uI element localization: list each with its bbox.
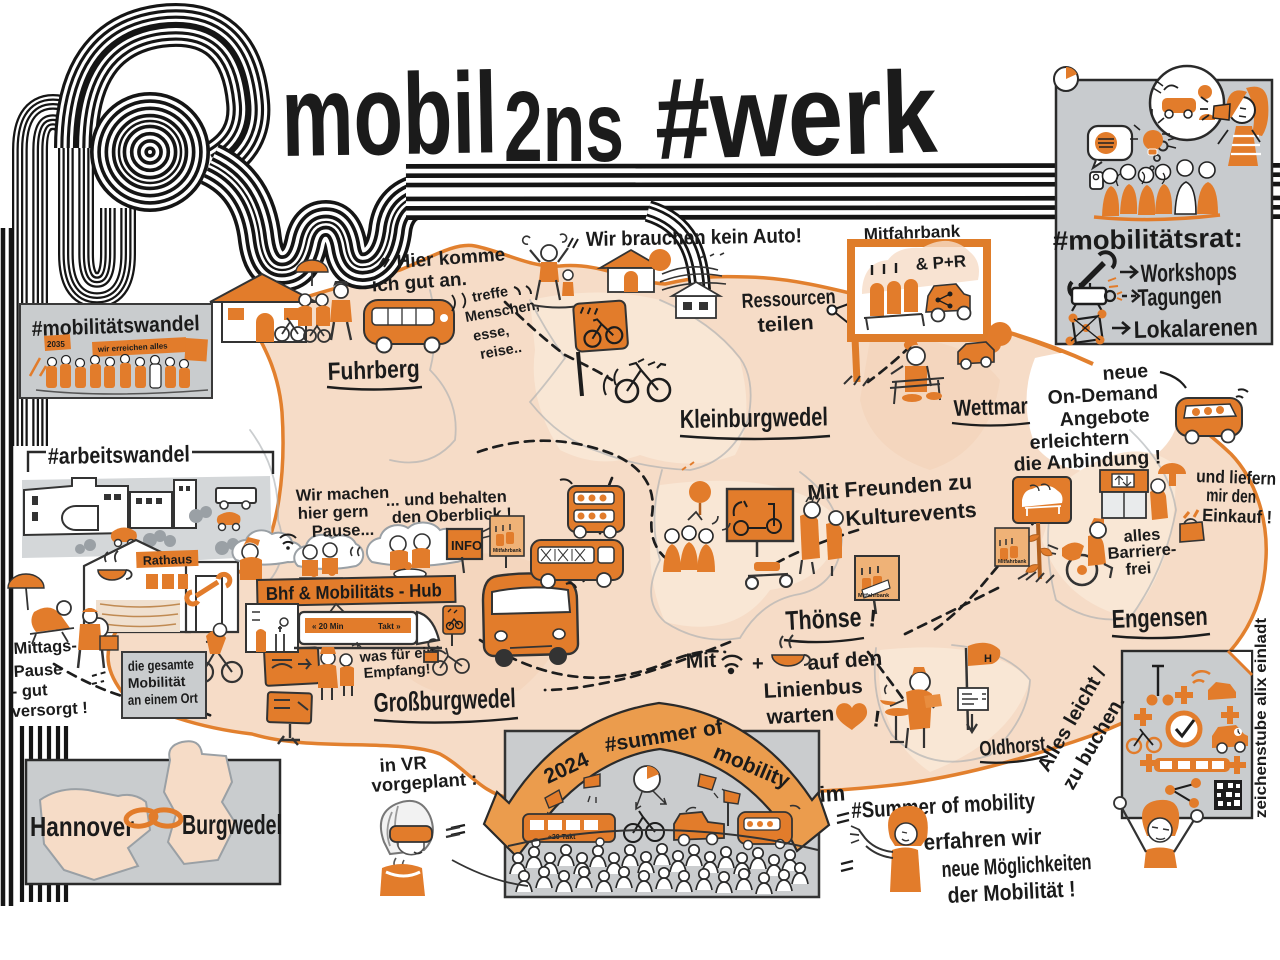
svg-text:Burgwedel: Burgwedel [182, 809, 282, 840]
svg-text:Wir machen: Wir machen [296, 484, 390, 505]
svg-text:Pause: Pause [13, 660, 63, 681]
svg-text:Rathaus: Rathaus [143, 552, 193, 568]
svg-text:Mittags-: Mittags- [13, 637, 77, 658]
svg-text:Takt »: Takt » [378, 622, 401, 631]
svg-text:2ns: 2ns [504, 71, 624, 183]
svg-text:#werk: #werk [653, 47, 939, 184]
svg-text:Tagungen: Tagungen [1137, 282, 1222, 312]
svg-text:INFO: INFO [451, 538, 482, 553]
svg-text:Fuhrberg: Fuhrberg [327, 355, 420, 386]
svg-text:& P+R: & P+R [915, 252, 967, 274]
svg-text:Hannover: Hannover [30, 811, 134, 842]
svg-text:Pause...: Pause... [312, 521, 375, 541]
svg-text:mobil: mobil [280, 49, 498, 181]
svg-text:mir den: mir den [1206, 485, 1257, 507]
svg-text:Wir brauchen kein Auto!: Wir brauchen kein Auto! [586, 224, 802, 251]
svg-text:Engensen: Engensen [1111, 601, 1208, 634]
svg-text:Ressourcen: Ressourcen [741, 285, 836, 313]
svg-text:Angebote: Angebote [1059, 404, 1150, 431]
svg-text:+: + [752, 653, 764, 675]
svg-text:an einem Ort: an einem Ort [128, 690, 199, 708]
svg-text:Einkauf !: Einkauf ! [1202, 505, 1273, 527]
svg-text:warten: warten [765, 702, 835, 729]
svg-text:Wettmar: Wettmar [953, 392, 1028, 421]
svg-text:Bhf & Mobilitäts - Hub: Bhf & Mobilitäts - Hub [266, 579, 442, 604]
svg-text:Thönse: Thönse [785, 602, 862, 636]
svg-text:2035: 2035 [47, 340, 65, 349]
svg-text:Mit: Mit [685, 649, 716, 673]
svg-text:Mobilität: Mobilität [128, 673, 186, 691]
svg-text:zeichenstube alix einladt: zeichenstube alix einladt [1253, 617, 1270, 818]
svg-text:H: H [984, 653, 992, 665]
svg-text:Mitfahrbank: Mitfahrbank [858, 593, 890, 599]
svg-text:frei: frei [1125, 559, 1152, 579]
svg-text:- gut: - gut [11, 681, 48, 701]
svg-text:#mobilitätsrat:: #mobilitätsrat: [1053, 223, 1243, 256]
svg-text:teilen: teilen [757, 311, 814, 337]
svg-text:Kleinburgwedel: Kleinburgwedel [680, 401, 829, 434]
svg-text:Lokalarenen: Lokalarenen [1133, 314, 1258, 344]
svg-text:Mitfahrbank: Mitfahrbank [493, 548, 522, 554]
svg-text:die gesamte: die gesamte [128, 656, 195, 674]
svg-text:hier gern: hier gern [298, 503, 369, 523]
svg-text:Mitfahrbank: Mitfahrbank [998, 559, 1027, 565]
svg-text:Großburgwedel: Großburgwedel [373, 683, 516, 718]
svg-text:« 20 Min: « 20 Min [312, 622, 344, 631]
svg-text:#arbeitswandel: #arbeitswandel [48, 441, 190, 469]
svg-text:im: im [819, 780, 846, 807]
